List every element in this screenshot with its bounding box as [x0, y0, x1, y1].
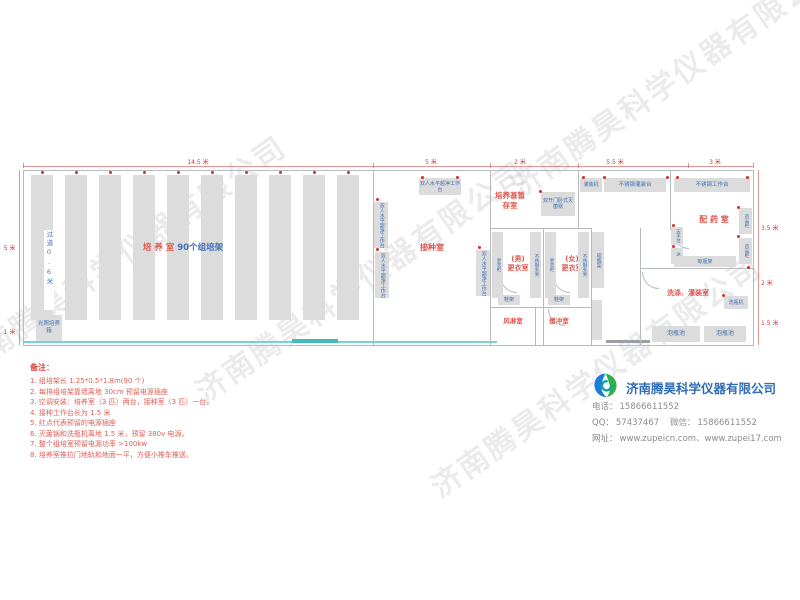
note-item: 7. 整个组培室预留电源功率 >100kw — [30, 439, 330, 450]
phone-label: 电话： — [592, 402, 618, 412]
dim-label-right-2: 2 米 — [761, 278, 773, 287]
dim-label-top-3: 2 米 — [505, 157, 535, 166]
dim-label-right-3: 1.5 米 — [761, 318, 778, 327]
soak-pool-box: 泡瓶池 — [704, 326, 746, 342]
culture-rack-row — [269, 175, 291, 320]
power-outlet-dot — [376, 198, 379, 201]
power-outlet-dot — [456, 176, 459, 179]
steel-bench-box: 不锈钢条凳 — [578, 232, 589, 298]
sterilizer-box: 双开门卧式灭菌锅 — [541, 192, 575, 216]
soak-pool-box: 泡瓶池 — [652, 326, 700, 342]
wall — [490, 307, 591, 308]
web-label: 网址： — [592, 434, 618, 444]
female-prefix: (女) — [565, 255, 578, 263]
steel-bench-box: 不锈钢条凳 — [530, 232, 541, 298]
sliding-door — [292, 339, 338, 343]
power-outlet-dot — [245, 171, 248, 174]
culture-rack-row — [337, 175, 359, 320]
notes-block: 备注： 1. 组培架长 1.25*0.5*1.8m(90 个) 2. 每排组培架… — [30, 362, 330, 460]
dim-tick — [23, 163, 24, 168]
power-outlet-dot — [582, 176, 585, 179]
notes-title: 备注： — [30, 362, 330, 373]
changing-room-word: 更衣室 — [508, 264, 529, 272]
power-outlet-dot — [672, 224, 675, 227]
medium-storage-label: 培养基暂存室 — [492, 191, 528, 211]
company-phone-line: 电话：15866611552 — [592, 400, 681, 412]
company-qq-line: QQ：57437467 微信：15866611552 — [592, 416, 759, 428]
power-outlet-dot — [672, 245, 675, 248]
dim-label-top-4: 5.5 米 — [598, 157, 632, 166]
balance-table-box: 天平台 — [671, 227, 683, 245]
wall — [578, 170, 579, 228]
power-outlet-dot — [746, 176, 749, 179]
note-item: 1. 组培架长 1.25*0.5*1.8m(90 个) — [30, 376, 330, 387]
dim-tick — [688, 163, 689, 168]
culture-room-racks-count: 90个组培架 — [177, 243, 223, 253]
note-item: 4. 接种工作台长为 1.5 米 — [30, 408, 330, 419]
power-outlet-dot — [737, 206, 740, 209]
power-outlet-dot — [666, 176, 669, 179]
power-outlet-dot — [376, 248, 379, 251]
dim-label-right-1: 3.5 米 — [761, 223, 778, 232]
qq-number: 57437467 — [616, 418, 659, 428]
culture-room-name: 培 养 室 — [143, 243, 174, 253]
bottle-washer-box: 洗瓶机 — [724, 296, 748, 309]
note-item: 3. 空调安装：培养室（3 匹）两台，接种室（3 匹）一台。 — [30, 397, 330, 408]
note-item: 6. 灭菌锅和洗瓶机离地 1.5 米，预留 380v 电源。 — [30, 429, 330, 440]
filling-table-box: 不锈钢灌装台 — [604, 178, 666, 192]
culture-rack-row — [65, 175, 87, 320]
power-outlet-dot — [478, 246, 481, 249]
dim-tick — [753, 163, 754, 168]
shoe-rack-box: 鞋架 — [548, 295, 570, 305]
power-outlet-dot — [41, 171, 44, 174]
inoculation-room-label: 接种室 — [400, 243, 464, 254]
buffer-room-label: 缓冲室 — [540, 317, 578, 326]
filling-machine-box: 灌装机 — [580, 178, 602, 192]
dim-line-top — [23, 166, 753, 167]
shoe-rack-box: 鞋架 — [498, 295, 520, 305]
dim-tick — [373, 163, 374, 168]
power-outlet-dot — [143, 171, 146, 174]
wall — [670, 170, 671, 230]
power-outlet-dot — [177, 171, 180, 174]
wall — [490, 170, 491, 345]
door-segment — [606, 340, 650, 343]
power-outlet-dot — [676, 176, 679, 179]
clean-bench-box: 双人水平超净工作台 — [476, 250, 490, 296]
dim-line-left — [19, 170, 20, 345]
web-urls: www.zupeicn.com、www.zupei17.com — [620, 434, 782, 444]
dim-label-top-2: 5 米 — [416, 157, 446, 166]
power-outlet-dot — [109, 171, 112, 174]
power-outlet-dot — [722, 294, 725, 297]
company-web-line: 网址：www.zupeicn.com、www.zupei17.com — [592, 432, 784, 444]
power-outlet-dot — [279, 171, 282, 174]
medicine-cabinet-box: 药品柜 — [739, 238, 752, 264]
wall — [535, 307, 536, 345]
work-table-box: 不锈钢工作台 — [674, 178, 750, 192]
dim-tick — [490, 163, 491, 168]
phone-number: 15866611552 — [620, 402, 680, 412]
bottle-drying-rack-box: 晾瓶架 — [592, 232, 604, 288]
dim-label-left-1: 5 米 — [2, 243, 17, 252]
air-shower-label: 风淋室 — [494, 317, 532, 326]
washing-room-label: 洗涤、灌装室 — [656, 289, 720, 298]
power-outlet-dot — [421, 176, 424, 179]
dim-tick — [578, 163, 579, 168]
wechat-label: 微信： — [670, 418, 696, 428]
note-item: 2. 每排组培架靠墙离地 30cm 预留电源插座 — [30, 387, 330, 398]
dim-label-top-1: 14.5 米 — [178, 157, 218, 166]
power-outlet-dot — [347, 171, 350, 174]
power-outlet-dot — [313, 171, 316, 174]
company-name: 济南腾昊科学仪器有限公司 — [626, 378, 776, 397]
pharmacy-room-label: 配 药 室 — [690, 215, 738, 226]
wechat-number: 15866611552 — [697, 418, 757, 428]
aisle-label: 过道0.6米 — [44, 230, 54, 310]
dim-line-right — [758, 170, 759, 345]
wall — [543, 228, 544, 345]
medicine-cabinet-box: 药品柜 — [739, 208, 752, 234]
floor-plan-drawing: 济南腾昊科学仪器有限公司 济南腾昊科学仪器有限公司 济南腾昊科学仪器有限公司 济… — [0, 0, 800, 600]
culture-rack-row — [303, 175, 325, 320]
clean-bench-box: 双人水平超净工作台 — [419, 178, 461, 195]
wall — [490, 228, 591, 229]
bottle-drying-rack-box: 晾瓶架 — [674, 256, 736, 267]
dim-label-left-2: 1 米 — [2, 327, 17, 336]
light-incubator-box: 光照培养箱 — [36, 315, 62, 341]
qq-label: QQ： — [592, 418, 614, 428]
power-outlet-dot — [539, 190, 542, 193]
wall — [373, 170, 374, 345]
power-outlet-dot — [211, 171, 214, 174]
note-item: 8. 培养室推拉门地轨和地面一平，方便小推车推送。 — [30, 450, 330, 461]
power-outlet-dot — [737, 235, 740, 238]
dim-label-top-5: 3 米 — [700, 157, 730, 166]
culture-room-label: 培 养 室 90个组培架 — [118, 243, 248, 254]
wall — [640, 228, 641, 345]
bottom-wall-line — [24, 341, 497, 343]
rack-box — [592, 300, 602, 340]
power-outlet-dot — [603, 176, 606, 179]
clean-bench-box: 双人水平超净工作台 — [375, 252, 389, 298]
wall — [640, 268, 753, 269]
power-outlet-dot — [75, 171, 78, 174]
company-logo-icon — [592, 372, 619, 399]
clean-bench-box: 双人水平超净工作台 — [374, 202, 388, 248]
power-outlet-dot — [747, 266, 750, 269]
note-item: 5. 红点代表预留的电源插座 — [30, 418, 330, 429]
male-prefix: (男) — [511, 255, 524, 263]
